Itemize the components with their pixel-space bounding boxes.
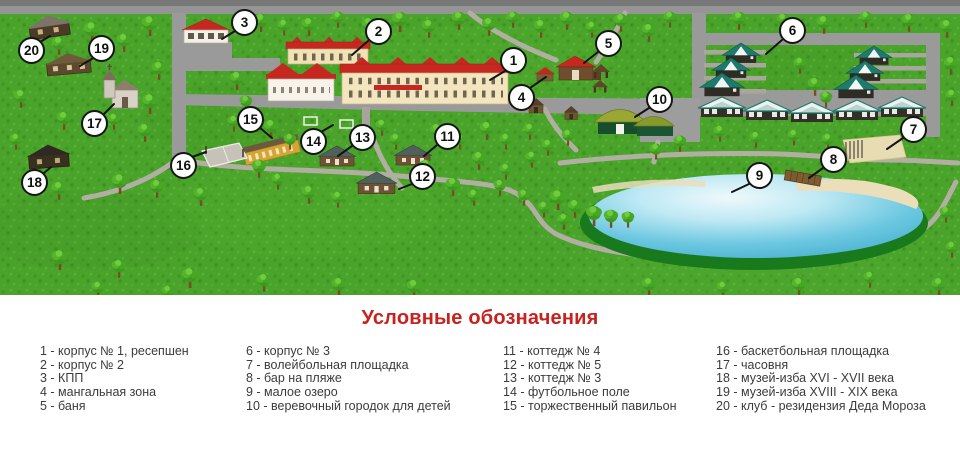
map-callout-20: 20 xyxy=(18,37,45,64)
map-callout-2: 2 xyxy=(365,18,392,45)
legend-item: 1 - корпус № 1, ресепшен xyxy=(40,345,189,359)
map-callout-19: 19 xyxy=(88,35,115,62)
legend-column-4: 16 - баскетбольная площадка 17 - часовня… xyxy=(716,345,926,414)
legend-item: 5 - баня xyxy=(40,400,189,414)
legend-column-1: 1 - корпус № 1, ресепшен 2 - корпус № 2 … xyxy=(40,345,189,414)
map-callout-16: 16 xyxy=(170,152,197,179)
map-callout-15: 15 xyxy=(237,106,264,133)
legend-item: 3 - КПП xyxy=(40,372,189,386)
legend-item: 19 - музей-изба XVIII - XIX века xyxy=(716,386,926,400)
building-korpus-1-main xyxy=(340,57,510,104)
legend-item: 14 - футбольное поле xyxy=(503,386,677,400)
map-callout-18: 18 xyxy=(21,169,48,196)
legend-column-2: 6 - корпус № 3 7 - волейбольная площадка… xyxy=(246,345,451,414)
legend-item: 9 - малое озеро xyxy=(246,386,451,400)
map-callout-10: 10 xyxy=(646,86,673,113)
legend-item: 8 - бар на пляже xyxy=(246,372,451,386)
legend-item: 15 - торжественный павильон xyxy=(503,400,677,414)
legend-item: 18 - музей-изба XVI - XVII века xyxy=(716,372,926,386)
map-callout-11: 11 xyxy=(434,123,461,150)
map-callout-17: 17 xyxy=(81,110,108,137)
map-callout-1: 1 xyxy=(500,47,527,74)
map-callout-5: 5 xyxy=(595,30,622,57)
legend-item: 20 - клуб - резидензия Деда Мороза xyxy=(716,400,926,414)
legend-item: 6 - корпус № 3 xyxy=(246,345,451,359)
map-callout-14: 14 xyxy=(300,128,327,155)
resort-map-illustration xyxy=(0,0,960,295)
map-callout-8: 8 xyxy=(820,146,847,173)
map-callout-12: 12 xyxy=(409,163,436,190)
resort-map-page: 1 2 3 4 5 6 7 8 9 10 11 12 13 14 15 16 1… xyxy=(0,0,960,453)
map-callout-3: 3 xyxy=(231,9,258,36)
legend-column-3: 11 - коттедж № 4 12 - коттедж № 5 13 - к… xyxy=(503,345,677,414)
legend-item: 13 - коттедж № 3 xyxy=(503,372,677,386)
map-area: 1 2 3 4 5 6 7 8 9 10 11 12 13 14 15 16 1… xyxy=(0,0,960,295)
map-callout-13: 13 xyxy=(349,124,376,151)
legend: Условные обозначения 1 - корпус № 1, рес… xyxy=(0,295,960,453)
legend-item: 16 - баскетбольная площадка xyxy=(716,345,926,359)
map-callout-9: 9 xyxy=(746,162,773,189)
legend-item: 11 - коттедж № 4 xyxy=(503,345,677,359)
legend-item: 12 - коттедж № 5 xyxy=(503,359,677,373)
map-callout-4: 4 xyxy=(508,84,535,111)
legend-item: 17 - часовня xyxy=(716,359,926,373)
legend-title: Условные обозначения xyxy=(0,307,960,330)
map-callout-7: 7 xyxy=(900,116,927,143)
map-callout-6: 6 xyxy=(779,17,806,44)
legend-item: 4 - мангальная зона xyxy=(40,386,189,400)
legend-item: 7 - волейбольная площадка xyxy=(246,359,451,373)
legend-item: 2 - корпус № 2 xyxy=(40,359,189,373)
small-lake xyxy=(580,174,928,270)
legend-item: 10 - веревочный городок для детей xyxy=(246,400,451,414)
